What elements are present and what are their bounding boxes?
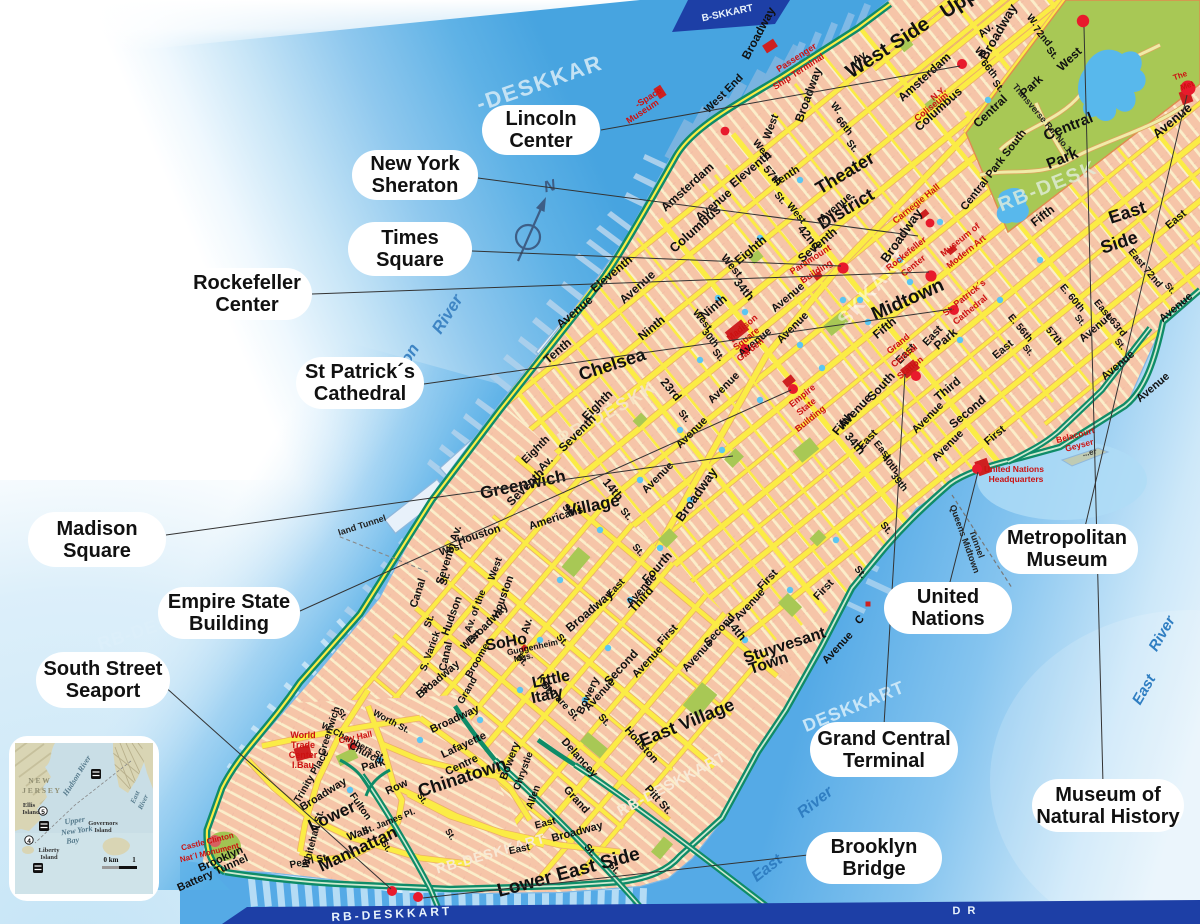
svg-text:I.Bau: I.Bau (292, 760, 314, 770)
svg-text:5: 5 (41, 809, 45, 816)
svg-text:Liberty: Liberty (39, 847, 61, 854)
svg-text:Ellis: Ellis (23, 802, 36, 809)
svg-text:0 km: 0 km (104, 856, 119, 864)
svg-text:4: 4 (27, 838, 31, 845)
svg-text:J E R S E Y: J E R S E Y (22, 786, 60, 795)
svg-text:Island: Island (22, 809, 40, 816)
svg-text:Trade: Trade (291, 740, 315, 750)
svg-text:Island: Island (94, 827, 112, 834)
svg-text:United Nations: United Nations (984, 464, 1044, 474)
svg-text:1: 1 (132, 856, 136, 864)
svg-text:World: World (290, 730, 315, 740)
svg-text:Headquarters: Headquarters (989, 474, 1044, 484)
svg-text:N E W: N E W (28, 776, 50, 785)
svg-text:Island: Island (40, 854, 58, 861)
svg-text:Center: Center (289, 750, 318, 760)
svg-text:D R: D R (952, 905, 977, 917)
svg-text:Governors: Governors (88, 820, 118, 827)
